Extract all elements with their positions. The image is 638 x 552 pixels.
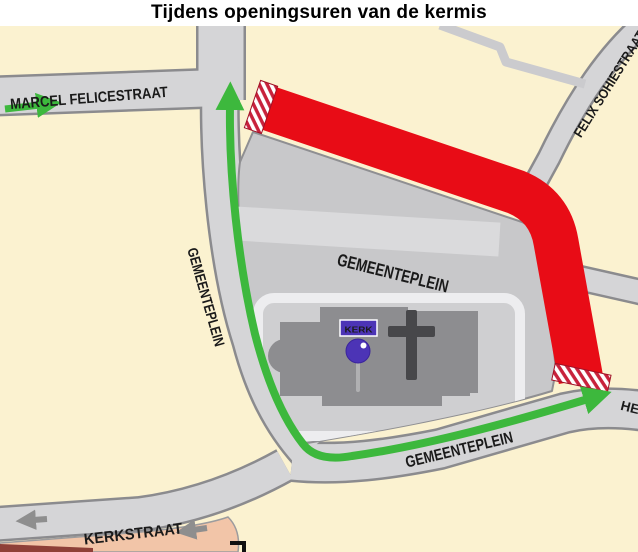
map-screenshot: Tijdens openingsuren van de kermis (0, 0, 638, 552)
oneway-arrow-icon-left (33, 519, 47, 520)
church-bottom-wing (322, 392, 442, 406)
cross-horizontal (388, 326, 435, 337)
cutoff-sign-stem (242, 541, 246, 552)
page-title: Tijdens openingsuren van de kermis (0, 0, 638, 26)
kerk-pin-icon (346, 339, 370, 363)
pin-highlight (361, 343, 367, 349)
oneway-arrow-icon-right (193, 528, 207, 530)
kermis-traffic-map: KERK MARCEL FELICESTRAAT FELIX SOHIESTRA… (0, 0, 638, 552)
cross-vertical (406, 310, 417, 380)
kerk-badge-label: KERK (345, 325, 374, 335)
